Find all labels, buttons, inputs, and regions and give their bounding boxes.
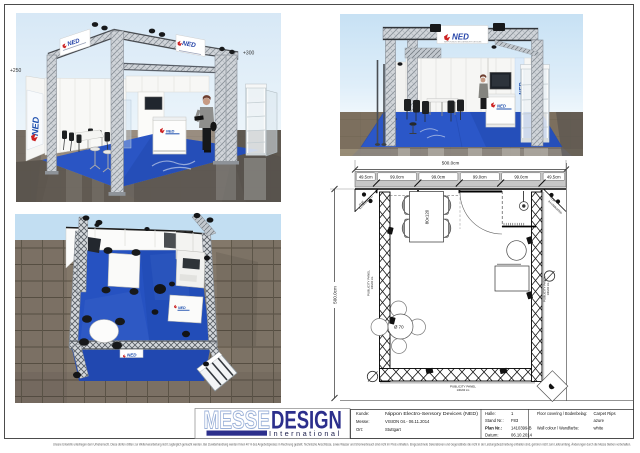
svg-text:Unsere Entwürfe unterliegen de: Unsere Entwürfe unterliegen dem Urheberr… bbox=[53, 443, 631, 447]
svg-text:Floor covering / Bodenbelag:: Floor covering / Bodenbelag: bbox=[537, 411, 587, 416]
svg-text:Ø 70: Ø 70 bbox=[394, 325, 404, 330]
svg-text:International: International bbox=[269, 429, 341, 438]
svg-text:+300: +300 bbox=[243, 51, 254, 57]
svg-text:PUBLICITY PANEL: PUBLICITY PANEL bbox=[450, 385, 476, 389]
svg-text:NED: NED bbox=[497, 104, 506, 109]
svg-text:130x60 cm: 130x60 cm bbox=[457, 388, 470, 392]
svg-text:NED: NED bbox=[166, 129, 175, 134]
svg-text:Stand Nr.:: Stand Nr.: bbox=[485, 418, 504, 423]
svg-text:500.0cm: 500.0cm bbox=[333, 286, 338, 304]
svg-text:Stuttgart: Stuttgart bbox=[385, 427, 402, 432]
svg-text:99.0cm: 99.0cm bbox=[514, 175, 528, 180]
svg-text:PUBLICITY PANEL: PUBLICITY PANEL bbox=[367, 270, 371, 296]
svg-text:Carpet Rips: Carpet Rips bbox=[594, 411, 616, 416]
svg-text:49.5cm: 49.5cm bbox=[359, 175, 373, 180]
svg-text:1410399-B: 1410399-B bbox=[511, 426, 532, 431]
svg-text:80x120: 80x120 bbox=[425, 209, 430, 224]
svg-text:99.0cm: 99.0cm bbox=[473, 175, 487, 180]
svg-text:Halle:: Halle: bbox=[485, 411, 496, 416]
svg-text:white: white bbox=[594, 426, 604, 431]
svg-text:F83: F83 bbox=[511, 418, 519, 423]
svg-text:NED: NED bbox=[178, 306, 186, 310]
svg-text:NED: NED bbox=[452, 33, 469, 42]
svg-text:Kunde:: Kunde: bbox=[356, 411, 369, 416]
svg-text:MESSE: MESSE bbox=[204, 406, 270, 434]
svg-text:azure: azure bbox=[594, 418, 605, 423]
svg-text:PUBLICITY PANEL: PUBLICITY PANEL bbox=[543, 276, 547, 302]
svg-text:99.0cm: 99.0cm bbox=[390, 175, 404, 180]
svg-text:Nippon Electro-Sensory Devices: Nippon Electro-Sensory Devices (NED) bbox=[385, 411, 479, 416]
svg-text:500.0cm: 500.0cm bbox=[442, 160, 460, 165]
svg-text:VISION 04.- 06.11.2014: VISION 04.- 06.11.2014 bbox=[385, 419, 430, 424]
svg-text:130x90 cm: 130x90 cm bbox=[370, 277, 374, 290]
svg-text:06.10.2014: 06.10.2014 bbox=[511, 433, 533, 438]
svg-text:Datum:: Datum: bbox=[485, 433, 499, 438]
svg-text:49.5cm: 49.5cm bbox=[547, 175, 561, 180]
svg-text:Wall colour / Wandfarbe:: Wall colour / Wandfarbe: bbox=[537, 426, 579, 431]
svg-text:Messe:: Messe: bbox=[356, 419, 370, 424]
svg-text:NIPPON ELECTRO-SENSORY DEVICES: NIPPON ELECTRO-SENSORY DEVICES bbox=[444, 42, 482, 44]
svg-text:130x90 cm: 130x90 cm bbox=[546, 283, 550, 296]
svg-text:Ort:: Ort: bbox=[356, 427, 363, 432]
svg-text:NED: NED bbox=[127, 353, 137, 358]
svg-text:NED: NED bbox=[30, 116, 41, 136]
svg-text:99.0cm: 99.0cm bbox=[432, 175, 446, 180]
svg-text:+250: +250 bbox=[10, 68, 21, 74]
svg-text:Plan Nr.:: Plan Nr.: bbox=[485, 426, 502, 431]
